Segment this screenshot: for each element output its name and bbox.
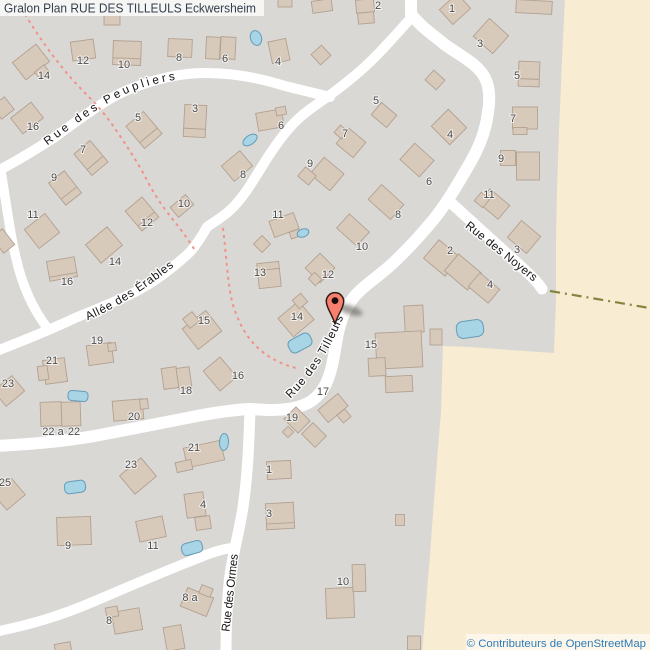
svg-text:1: 1 [266,464,272,476]
svg-text:4: 4 [275,56,281,68]
svg-text:6: 6 [426,176,432,188]
svg-text:10: 10 [178,198,190,210]
svg-text:11: 11 [147,540,158,552]
svg-text:22: 22 [68,426,80,438]
svg-text:© Contributeurs de OpenStreetM: © Contributeurs de OpenStreetMap [467,638,646,650]
svg-text:Gralon Plan RUE DES TILLEULS E: Gralon Plan RUE DES TILLEULS Eckwersheim [4,1,256,16]
svg-text:7: 7 [80,144,86,156]
svg-text:18: 18 [180,385,192,397]
svg-text:21: 21 [188,442,200,454]
svg-text:15: 15 [198,315,210,327]
svg-text:12: 12 [322,269,334,281]
svg-text:3: 3 [477,38,483,50]
svg-text:8 a: 8 a [182,592,198,604]
svg-text:19: 19 [91,335,103,347]
svg-text:8: 8 [176,52,182,64]
svg-text:22 a: 22 a [42,426,64,438]
svg-text:2: 2 [447,245,453,257]
svg-text:11: 11 [272,209,283,221]
svg-text:15: 15 [365,339,377,351]
svg-text:16: 16 [61,276,73,288]
svg-text:6: 6 [222,53,228,65]
svg-text:12: 12 [141,217,153,229]
svg-text:5: 5 [514,70,520,82]
svg-text:21: 21 [46,355,58,367]
svg-text:13: 13 [254,267,266,279]
svg-text:2: 2 [375,0,381,12]
svg-text:4: 4 [200,499,206,511]
svg-text:6: 6 [278,120,284,132]
svg-text:20: 20 [128,411,140,423]
svg-text:9: 9 [51,172,57,184]
svg-text:25: 25 [0,477,11,489]
svg-text:12: 12 [77,55,89,67]
svg-text:11: 11 [27,209,38,221]
svg-text:3: 3 [192,103,198,115]
svg-text:5: 5 [373,95,379,107]
svg-text:9: 9 [307,158,313,170]
svg-text:14: 14 [291,311,303,323]
svg-text:7: 7 [510,113,516,125]
svg-text:11: 11 [483,189,494,201]
svg-text:17: 17 [317,386,329,398]
svg-text:19: 19 [286,412,298,424]
svg-text:5: 5 [135,112,141,124]
svg-text:4: 4 [487,279,493,291]
svg-text:4: 4 [447,129,453,141]
svg-text:23: 23 [125,459,137,471]
svg-text:16: 16 [232,370,244,382]
svg-text:10: 10 [337,576,349,588]
svg-text:3: 3 [266,508,272,520]
svg-text:9: 9 [65,540,71,552]
svg-text:8: 8 [106,615,112,627]
svg-text:14: 14 [38,70,50,82]
svg-text:14: 14 [109,256,121,268]
svg-text:10: 10 [356,241,368,253]
svg-text:1: 1 [449,3,455,15]
svg-text:8: 8 [240,169,246,181]
svg-text:8: 8 [395,209,401,221]
svg-text:10: 10 [118,59,130,71]
svg-text:16: 16 [27,121,39,133]
svg-text:23: 23 [2,378,14,390]
svg-text:7: 7 [342,128,348,140]
svg-text:9: 9 [498,153,504,165]
